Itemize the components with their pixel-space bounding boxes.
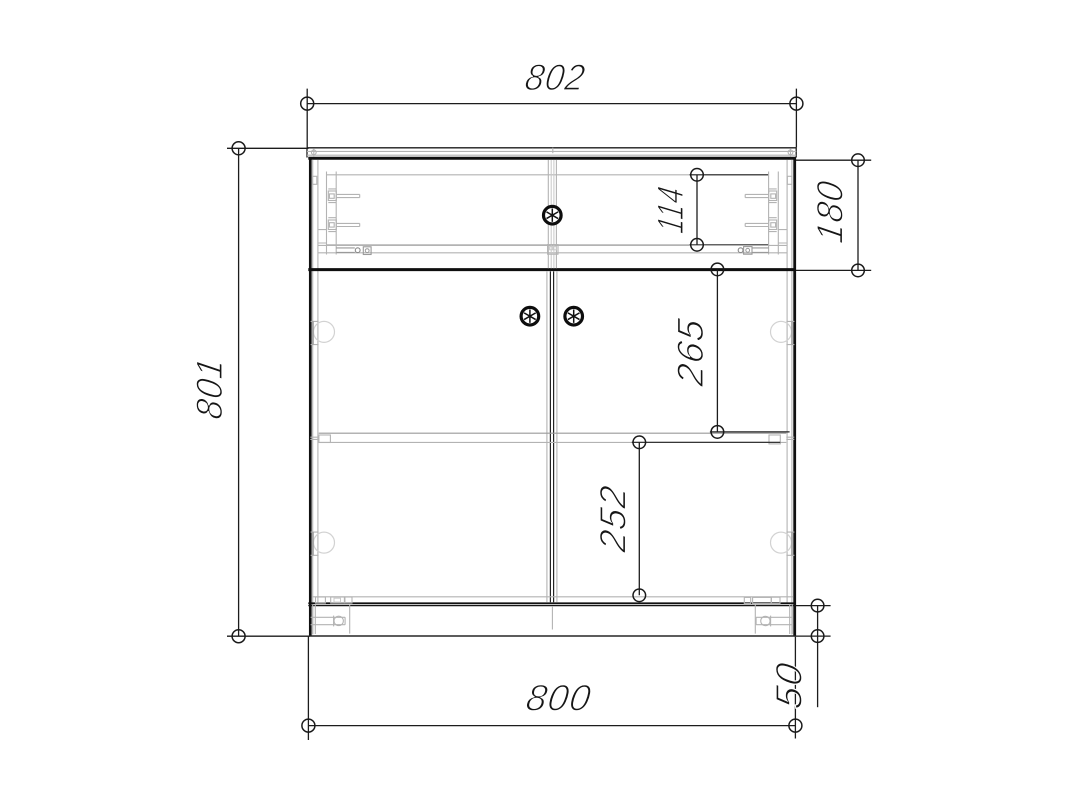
svg-text:265: 265 [669, 315, 711, 390]
svg-text:800: 800 [523, 677, 595, 719]
svg-text:180: 180 [809, 177, 851, 246]
svg-text:114: 114 [649, 183, 691, 236]
svg-text:252: 252 [592, 482, 634, 556]
svg-text:50: 50 [768, 659, 810, 712]
svg-text:802: 802 [522, 56, 589, 98]
svg-text:801: 801 [188, 354, 230, 422]
